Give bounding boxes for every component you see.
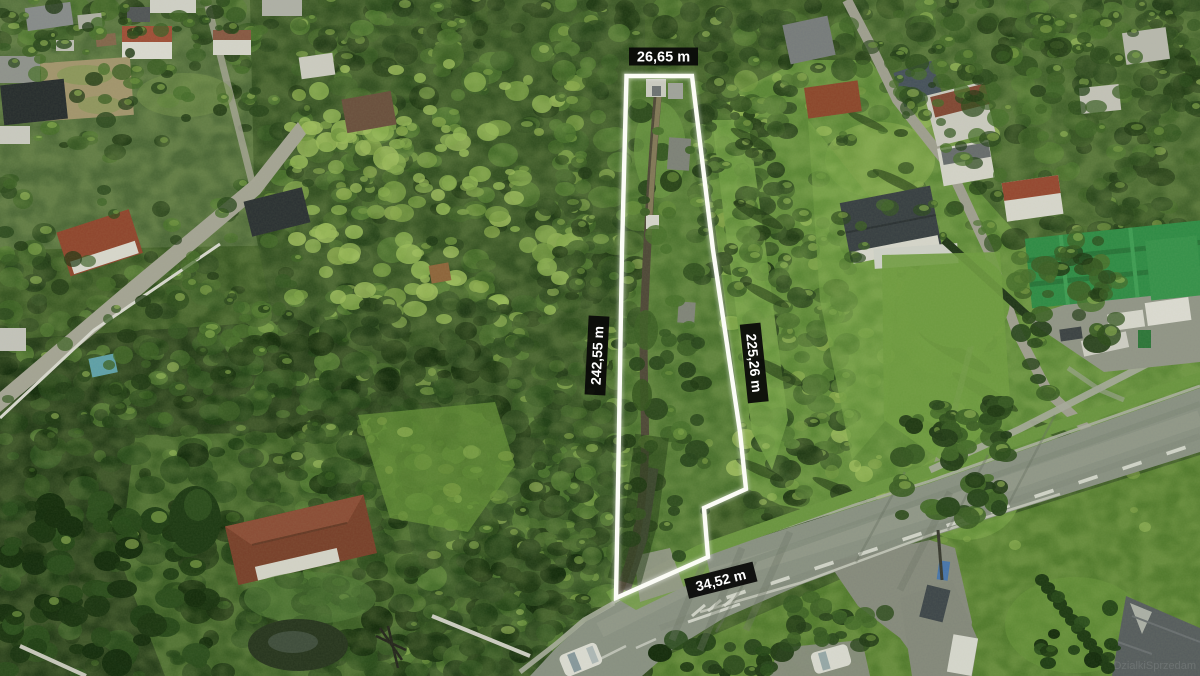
svg-text:DzialkiSprzedam: DzialkiSprzedam (1113, 660, 1196, 672)
svg-text:242,55 m: 242,55 m (587, 326, 606, 386)
svg-text:26,65 m: 26,65 m (637, 50, 690, 66)
